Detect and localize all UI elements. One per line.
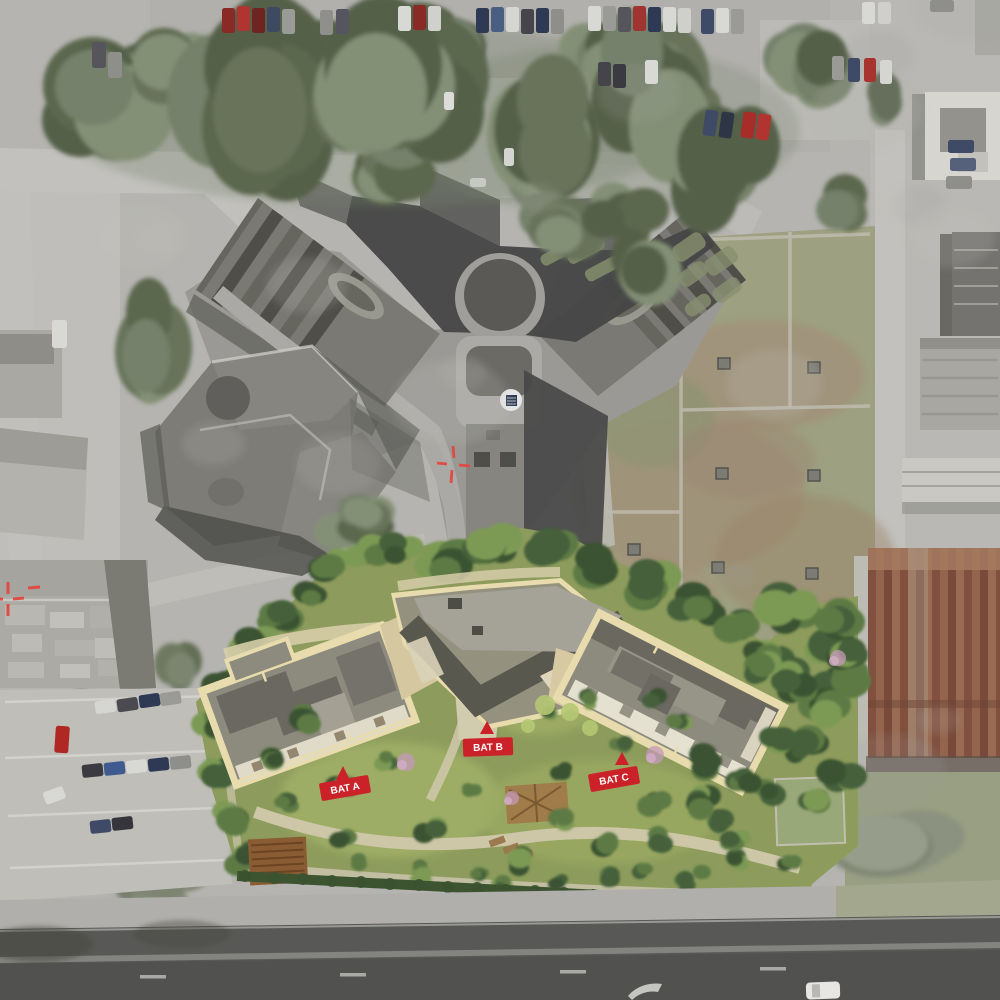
svg-text:BAT B: BAT B xyxy=(473,742,503,754)
